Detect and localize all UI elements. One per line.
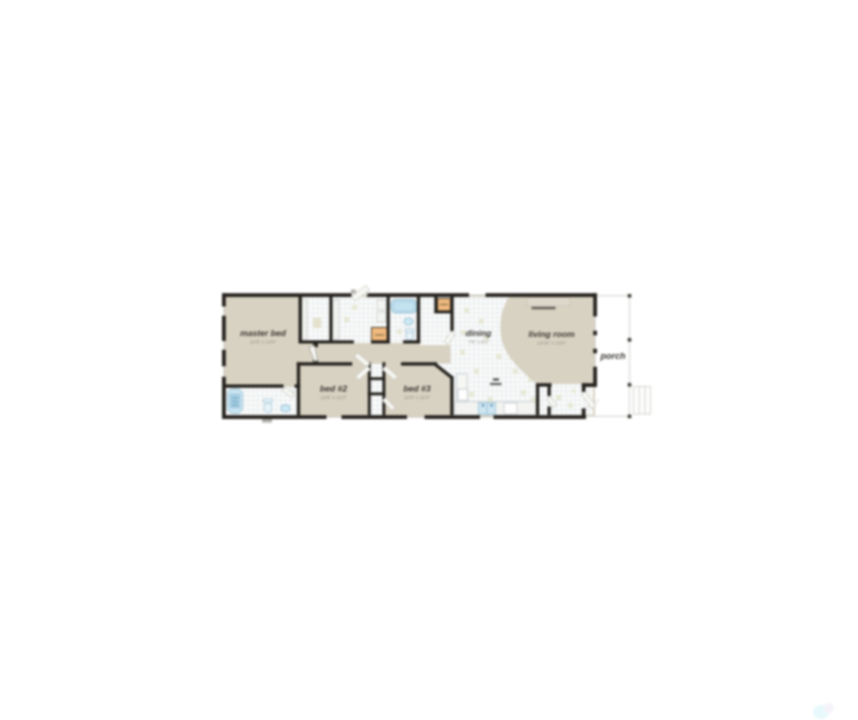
svg-text:13'10" x 13'6": 13'10" x 13'6" — [537, 341, 566, 347]
svg-text:bed #2: bed #2 — [320, 384, 347, 394]
svg-text:12'8" x 13'6": 12'8" x 13'6" — [250, 340, 277, 346]
svg-text:master bed: master bed — [240, 328, 287, 338]
svg-text:12'8" x 11'0": 12'8" x 11'0" — [321, 395, 347, 401]
svg-text:12'0" x 11'0": 12'0" x 11'0" — [404, 395, 430, 401]
svg-text:porch: porch — [599, 351, 626, 361]
svg-text:living room: living room — [528, 329, 575, 339]
svg-text:bed #3: bed #3 — [403, 384, 430, 394]
svg-text:7'8" x 8'2": 7'8" x 8'2" — [468, 340, 489, 346]
svg-text:dining: dining — [466, 328, 493, 338]
